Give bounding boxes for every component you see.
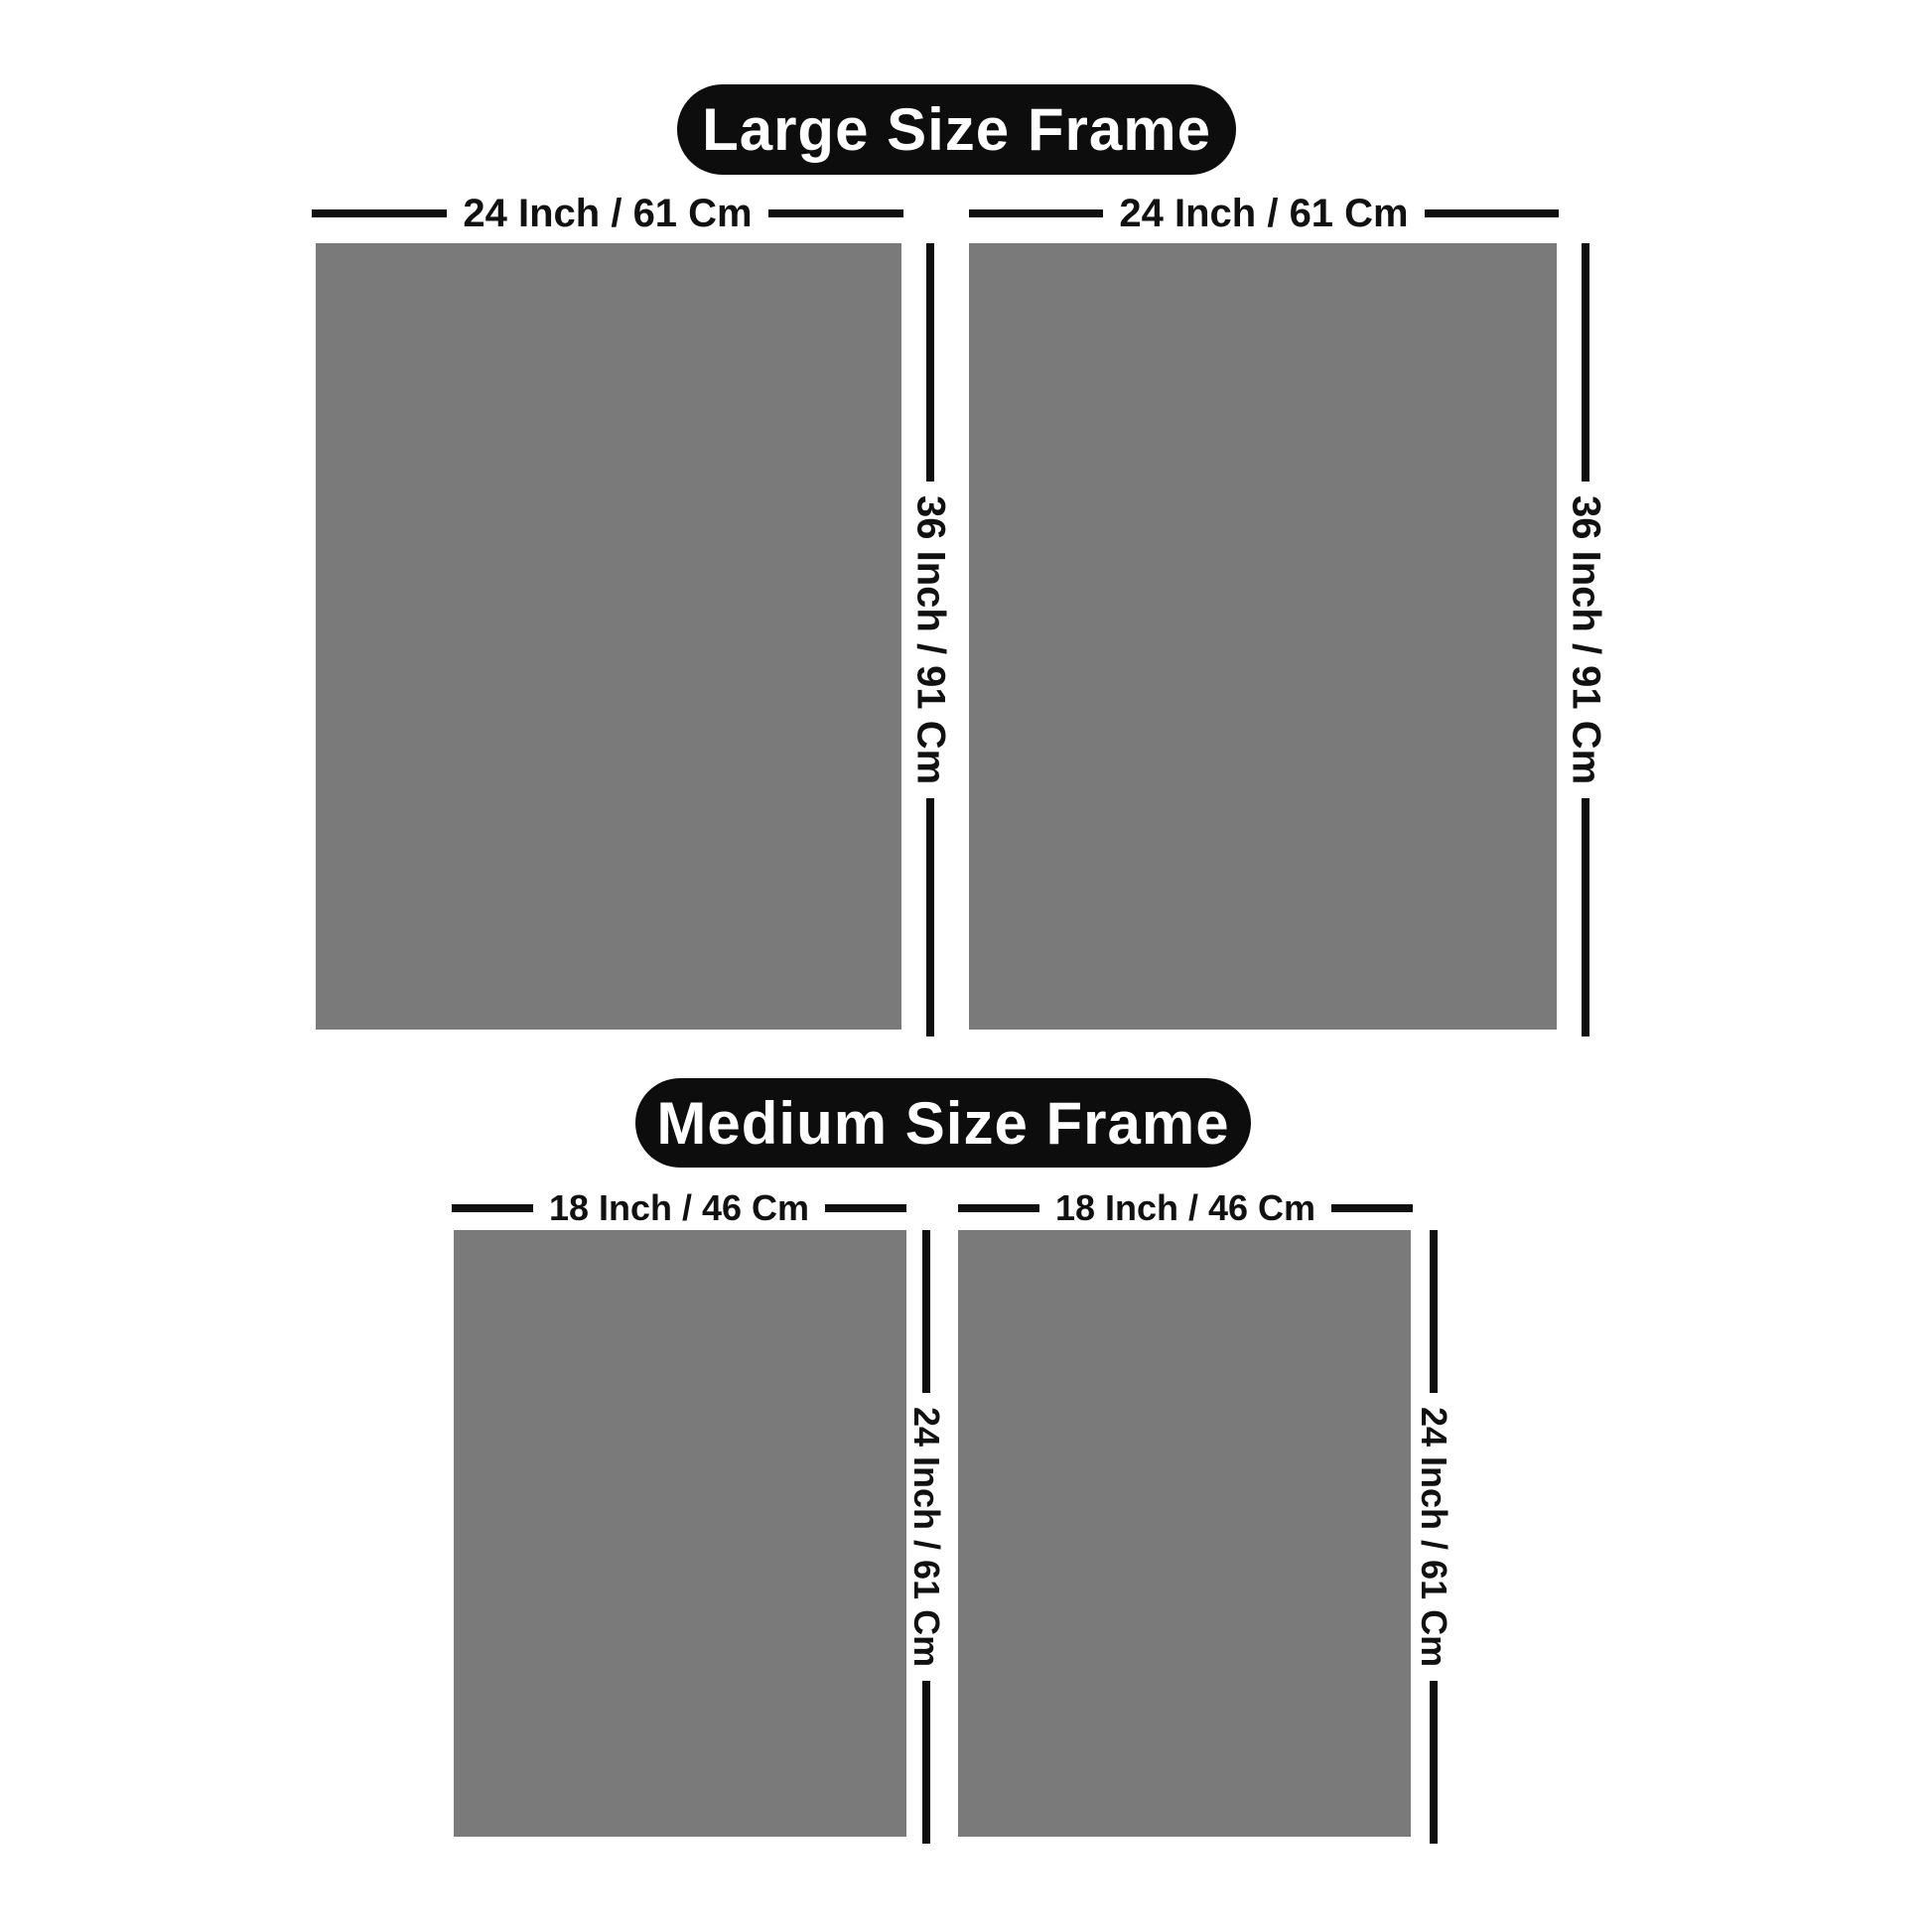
dimension-line <box>922 1681 930 1844</box>
size-guide: Large Size Frame 24 Inch / 61 Cm 24 Inch… <box>0 0 1932 1932</box>
medium-right-height-dimension: 24 Inch / 61 Cm <box>1412 1230 1455 1844</box>
large-right-width-dimension: 24 Inch / 61 Cm <box>969 192 1559 235</box>
large-right-width-label: 24 Inch / 61 Cm <box>1119 192 1408 236</box>
dimension-line <box>969 209 1103 217</box>
dimension-line <box>1582 243 1589 482</box>
dimension-line <box>1425 209 1559 217</box>
dimension-line <box>926 243 934 482</box>
medium-section-title: Medium Size Frame <box>656 1089 1229 1158</box>
large-left-width-dimension: 24 Inch / 61 Cm <box>312 192 903 235</box>
large-right-height-label: 36 Inch / 91 Cm <box>1564 495 1608 784</box>
medium-left-height-label: 24 Inch / 61 Cm <box>905 1407 947 1667</box>
large-left-poster <box>316 243 901 1030</box>
large-left-height-dimension: 36 Inch / 91 Cm <box>908 243 952 1036</box>
dimension-line <box>1430 1230 1438 1393</box>
large-section-title: Large Size Frame <box>702 95 1211 164</box>
dimension-line <box>1430 1681 1438 1844</box>
large-right-poster <box>969 243 1557 1030</box>
medium-left-poster <box>454 1230 906 1837</box>
dimension-line <box>768 209 903 217</box>
large-left-width-label: 24 Inch / 61 Cm <box>463 192 752 236</box>
large-left-height-label: 36 Inch / 91 Cm <box>908 495 953 784</box>
medium-right-poster <box>958 1230 1411 1837</box>
dimension-line <box>312 209 447 217</box>
medium-right-width-label: 18 Inch / 46 Cm <box>1055 1187 1315 1229</box>
medium-right-height-label: 24 Inch / 61 Cm <box>1413 1407 1454 1667</box>
dimension-line <box>452 1204 533 1212</box>
medium-section-title-pill: Medium Size Frame <box>635 1078 1251 1168</box>
large-section-title-pill: Large Size Frame <box>677 84 1236 175</box>
medium-left-width-label: 18 Inch / 46 Cm <box>549 1187 809 1229</box>
dimension-line <box>1582 798 1589 1036</box>
medium-left-width-dimension: 18 Inch / 46 Cm <box>452 1187 906 1229</box>
dimension-line <box>958 1204 1039 1212</box>
dimension-line <box>1331 1204 1413 1212</box>
medium-right-width-dimension: 18 Inch / 46 Cm <box>958 1187 1413 1229</box>
dimension-line <box>825 1204 906 1212</box>
large-right-height-dimension: 36 Inch / 91 Cm <box>1564 243 1607 1036</box>
dimension-line <box>922 1230 930 1393</box>
medium-left-height-dimension: 24 Inch / 61 Cm <box>904 1230 948 1844</box>
dimension-line <box>926 798 934 1036</box>
